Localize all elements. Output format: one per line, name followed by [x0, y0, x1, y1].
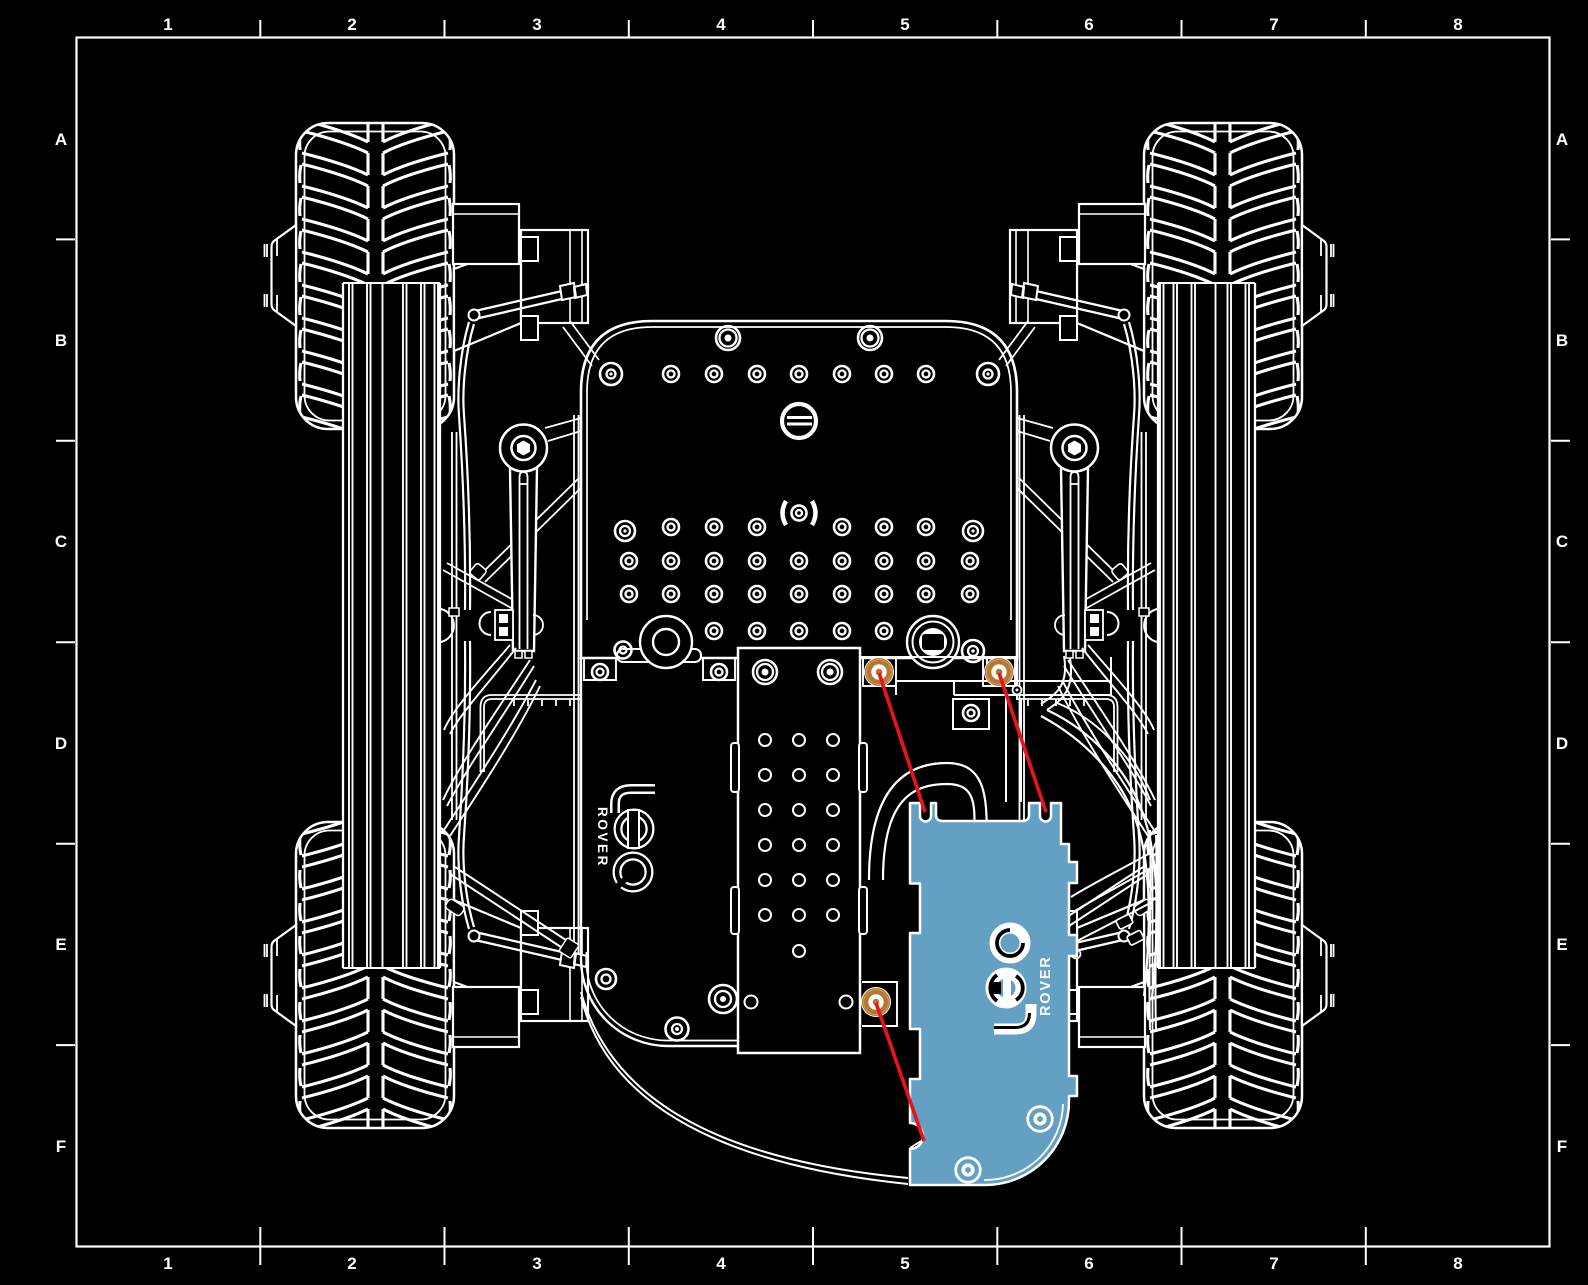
svg-text:6: 6 [1084, 15, 1093, 34]
svg-text:A: A [55, 130, 67, 149]
svg-text:D: D [55, 734, 67, 753]
svg-text:F: F [1557, 1137, 1567, 1156]
svg-text:7: 7 [1269, 15, 1278, 34]
svg-text:4: 4 [716, 1254, 726, 1273]
svg-text:3: 3 [532, 15, 541, 34]
svg-text:E: E [55, 935, 66, 954]
svg-text:C: C [55, 532, 67, 551]
svg-text:C: C [1556, 532, 1568, 551]
svg-text:8: 8 [1453, 1254, 1462, 1273]
svg-text:3: 3 [532, 1254, 541, 1273]
svg-text:ROVER: ROVER [1038, 955, 1054, 1016]
svg-text:B: B [55, 331, 67, 350]
svg-text:E: E [1556, 935, 1567, 954]
svg-text:4: 4 [716, 15, 726, 34]
svg-text:2: 2 [347, 1254, 356, 1273]
svg-text:A: A [1556, 130, 1568, 149]
svg-text:5: 5 [900, 15, 909, 34]
svg-text:B: B [1556, 331, 1568, 350]
svg-text:7: 7 [1269, 1254, 1278, 1273]
svg-text:1: 1 [163, 1254, 172, 1273]
svg-text:ROVER: ROVER [595, 807, 610, 868]
svg-text:5: 5 [900, 1254, 909, 1273]
svg-text:8: 8 [1453, 15, 1462, 34]
svg-text:6: 6 [1084, 1254, 1093, 1273]
svg-text:2: 2 [347, 15, 356, 34]
svg-text:F: F [56, 1137, 66, 1156]
svg-text:1: 1 [163, 15, 172, 34]
svg-text:D: D [1556, 734, 1568, 753]
